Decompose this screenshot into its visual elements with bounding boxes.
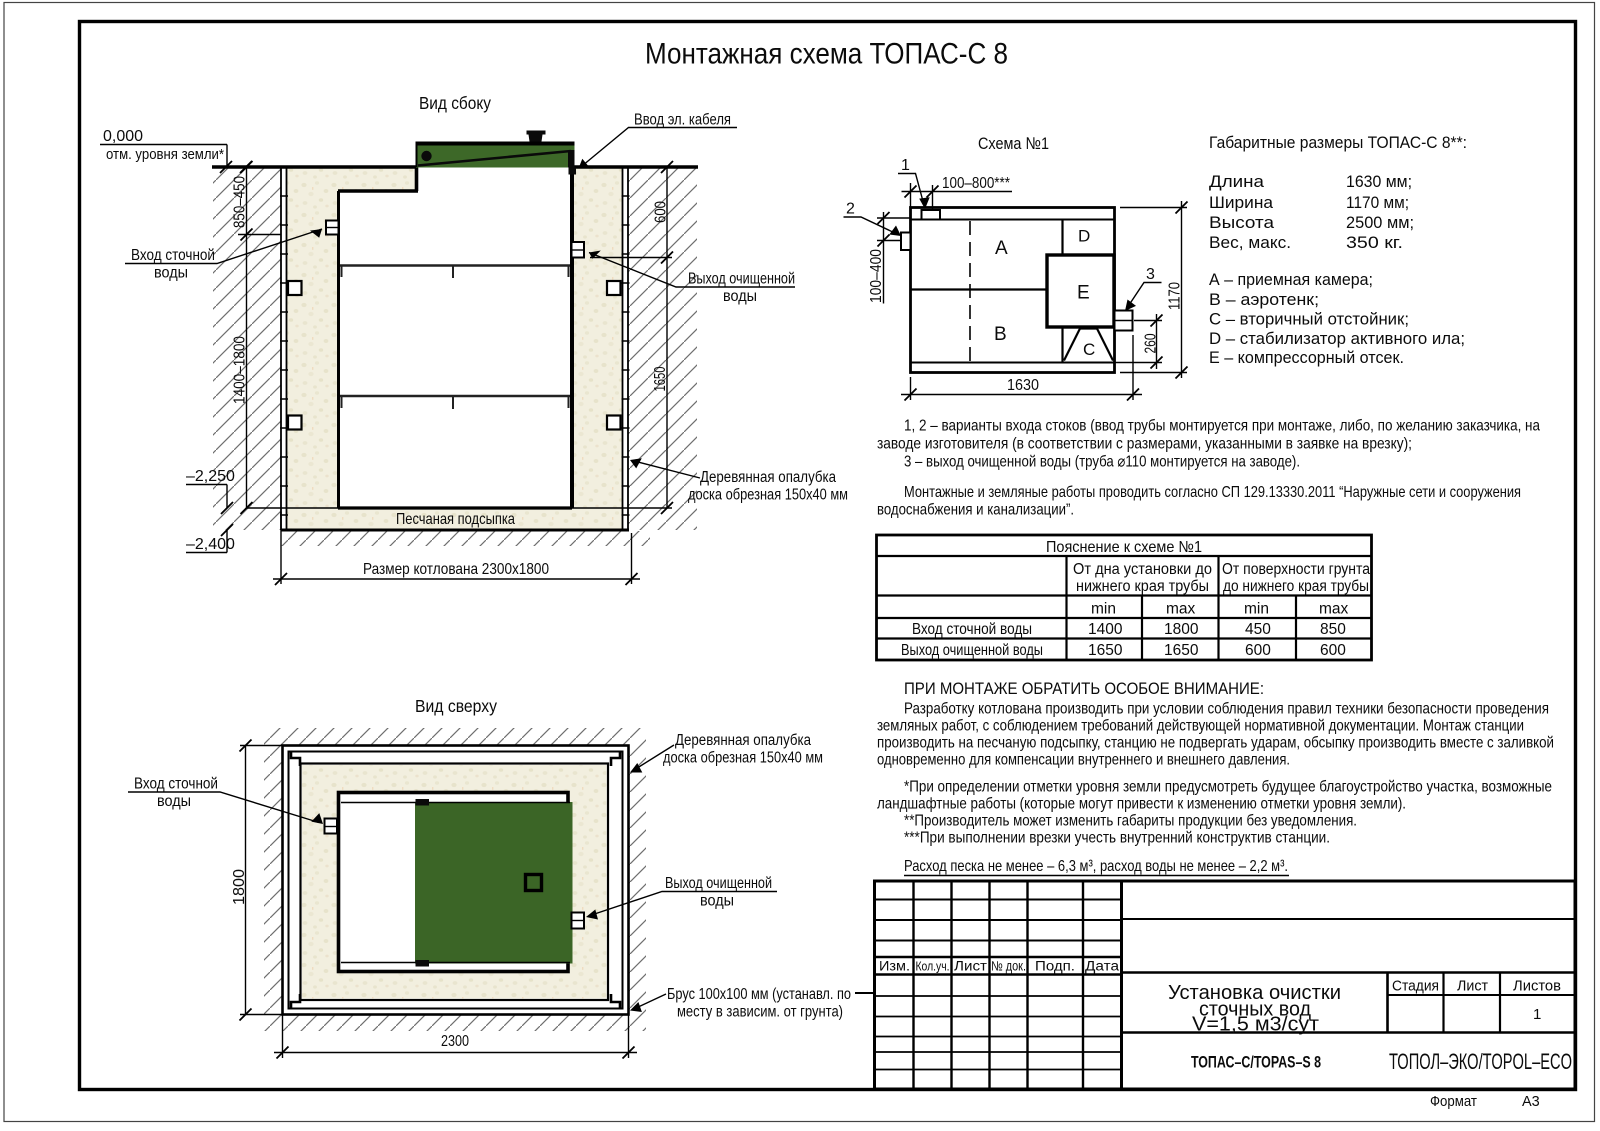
svg-text:1170: 1170 xyxy=(1167,282,1184,310)
svg-text:Лист: Лист xyxy=(1457,979,1488,995)
svg-text:Схема №1: Схема №1 xyxy=(978,134,1049,153)
svg-text:600: 600 xyxy=(653,201,670,223)
svg-text:Кол.уч.: Кол.уч. xyxy=(916,960,950,974)
svg-text:1650: 1650 xyxy=(652,366,669,391)
svg-text:**Производитель может изменить: **Производитель может изменить габариты … xyxy=(904,813,1357,830)
svg-text:260: 260 xyxy=(1143,333,1160,353)
svg-text:1650: 1650 xyxy=(1088,642,1123,659)
svg-text:Вход сточной воды: Вход сточной воды xyxy=(912,621,1032,638)
svg-text:Монтажная схема ТОПАС-С 8: Монтажная схема ТОПАС-С 8 xyxy=(645,38,1008,71)
svg-text:Монтажные и земляные работы пр: Монтажные и земляные работы проводить со… xyxy=(904,484,1521,501)
svg-text:850: 850 xyxy=(1320,621,1346,638)
svg-text:А – приемная камера;: А – приемная камера; xyxy=(1209,270,1373,289)
svg-text:600: 600 xyxy=(1245,642,1271,659)
svg-text:1630: 1630 xyxy=(1007,377,1039,394)
svg-text:С – вторичный отстойник;: С – вторичный отстойник; xyxy=(1209,310,1409,329)
svg-text:2: 2 xyxy=(846,201,855,218)
svg-text:A: A xyxy=(995,238,1008,259)
svg-text:Стадия: Стадия xyxy=(1392,979,1439,995)
svg-text:до нижнего края трубы: до нижнего края трубы xyxy=(1223,578,1369,595)
svg-text:max: max xyxy=(1319,601,1349,618)
svg-text:нижнего края трубы: нижнего края трубы xyxy=(1076,578,1209,595)
svg-text:воды: воды xyxy=(700,893,734,910)
svg-text:1400: 1400 xyxy=(1088,621,1123,638)
svg-text:земляных работ, с соблюдением: земляных работ, с соблюдением требований… xyxy=(877,718,1524,735)
svg-text:доска обрезная 150х40 мм: доска обрезная 150х40 мм xyxy=(663,750,823,767)
svg-text:Формат: Формат xyxy=(1430,1094,1477,1110)
svg-text:Размер котлована 2300х1800: Размер котлована 2300х1800 xyxy=(363,561,549,578)
svg-text:Вход сточной: Вход сточной xyxy=(134,776,218,793)
svg-text:Изм.: Изм. xyxy=(879,959,910,974)
svg-text:1400–1800: 1400–1800 xyxy=(232,336,249,404)
svg-text:1630 мм;: 1630 мм; xyxy=(1346,172,1412,191)
svg-text:От поверхности грунта: От поверхности грунта xyxy=(1222,561,1370,578)
svg-text:ландшафтные работы (которые мо: ландшафтные работы (которые могут привес… xyxy=(877,796,1406,813)
svg-text:Е – компрессорный отсек.: Е – компрессорный отсек. xyxy=(1209,348,1404,367)
svg-text:1800: 1800 xyxy=(231,869,248,905)
svg-text:0,000: 0,000 xyxy=(103,128,143,145)
svg-text:воды: воды xyxy=(723,288,757,305)
svg-text:Пояснение к схеме №1: Пояснение к схеме №1 xyxy=(1046,539,1202,556)
svg-text:доска обрезная 150х40 мм: доска обрезная 150х40 мм xyxy=(688,487,848,504)
svg-text:Выход очищенной: Выход очищенной xyxy=(665,875,772,892)
svg-text:Брус 100х100 мм (устанавл. по: Брус 100х100 мм (устанавл. по xyxy=(667,986,851,1003)
svg-text:100–400: 100–400 xyxy=(868,249,885,303)
svg-text:Дата: Дата xyxy=(1085,959,1120,974)
svg-text:1800: 1800 xyxy=(1164,621,1199,638)
svg-text:1: 1 xyxy=(901,157,910,174)
svg-text:min: min xyxy=(1091,601,1116,618)
svg-text:Габаритные размеры ТОПАС-С 8**: Габаритные размеры ТОПАС-С 8**: xyxy=(1209,133,1467,152)
svg-text:Разработку котлована производи: Разработку котлована производить при усл… xyxy=(904,701,1549,718)
svg-text:Расход песка не менее – 6,3 м³: Расход песка не менее – 6,3 м³, расход в… xyxy=(904,858,1288,875)
svg-text:В – аэротенк;: В – аэротенк; xyxy=(1209,290,1319,309)
svg-text:А3: А3 xyxy=(1522,1094,1540,1110)
svg-text:1: 1 xyxy=(1533,1006,1541,1023)
svg-text:***При выполнении врезки учест: ***При выполнении врезки учесть внутренн… xyxy=(904,830,1330,847)
svg-text:Вид сбоку: Вид сбоку xyxy=(419,93,491,113)
svg-text:E: E xyxy=(1077,283,1090,304)
svg-text:min: min xyxy=(1244,601,1269,618)
svg-text:Вес, макс.: Вес, макс. xyxy=(1209,233,1291,252)
svg-text:1650: 1650 xyxy=(1164,642,1199,659)
svg-text:Вход сточной: Вход сточной xyxy=(131,247,215,264)
svg-text:Вид сверху: Вид сверху xyxy=(415,696,497,716)
svg-text:V=1,5 м3/сут: V=1,5 м3/сут xyxy=(1192,1013,1320,1036)
svg-text:D – стабилизатор активного ила: D – стабилизатор активного ила; xyxy=(1209,329,1465,348)
svg-text:*При определении отметки уровн: *При определении отметки уровня земли пр… xyxy=(904,779,1552,796)
svg-text:производить на песчаную подсып: производить на песчаную подсыпку, станци… xyxy=(877,735,1554,752)
svg-text:воды: воды xyxy=(154,265,188,282)
svg-text:отм. уровня земли*: отм. уровня земли* xyxy=(106,146,224,163)
svg-text:ПРИ МОНТАЖЕ ОБРАТИТЬ ОСОБОЕ ВН: ПРИ МОНТАЖЕ ОБРАТИТЬ ОСОБОЕ ВНИМАНИЕ: xyxy=(904,680,1264,698)
svg-text:№ док.: № док. xyxy=(991,959,1026,974)
svg-text:Выход очищенной воды: Выход очищенной воды xyxy=(901,642,1043,659)
svg-text:Ширина: Ширина xyxy=(1209,193,1274,212)
svg-text:450: 450 xyxy=(1245,621,1271,638)
svg-text:водоснабжения и канализации”.: водоснабжения и канализации”. xyxy=(877,502,1074,519)
svg-text:350 кг.: 350 кг. xyxy=(1346,233,1403,252)
svg-text:воды: воды xyxy=(157,793,191,810)
svg-text:850–450: 850–450 xyxy=(232,176,249,228)
svg-text:100–800***: 100–800*** xyxy=(942,175,1010,192)
svg-text:Деревянная опалубка: Деревянная опалубка xyxy=(700,469,836,486)
svg-text:D: D xyxy=(1078,227,1090,246)
svg-text:Деревянная опалубка: Деревянная опалубка xyxy=(675,732,811,749)
svg-text:1, 2 – варианты входа стоков: 1, 2 – варианты входа стоков (ввод трубы… xyxy=(904,418,1540,435)
svg-text:2500 мм;: 2500 мм; xyxy=(1346,213,1414,232)
svg-text:2300: 2300 xyxy=(441,1033,469,1050)
svg-text:ТОПАС–С/TOPAS–S 8: ТОПАС–С/TOPAS–S 8 xyxy=(1191,1053,1321,1072)
svg-text:Высота: Высота xyxy=(1209,213,1275,232)
svg-text:одновременно для компенсации в: одновременно для компенсации внутреннего… xyxy=(877,752,1290,769)
svg-text:Длина: Длина xyxy=(1209,172,1265,191)
svg-text:C: C xyxy=(1083,340,1095,359)
svg-text:заводе изготовителя (в соответ: заводе изготовителя (в соответствии с ра… xyxy=(877,436,1412,453)
svg-text:Ввод эл. кабеля: Ввод эл. кабеля xyxy=(634,112,731,129)
svg-text:Выход очищенной: Выход очищенной xyxy=(688,271,795,288)
svg-text:От дна установки до: От дна установки до xyxy=(1073,561,1212,578)
svg-text:ТОПОЛ–ЭКО/TOPOL–ECO: ТОПОЛ–ЭКО/TOPOL–ECO xyxy=(1389,1049,1572,1074)
svg-text:Песчаная подсыпка: Песчаная подсыпка xyxy=(396,511,515,528)
svg-text:месту в зависим. от грунта): месту в зависим. от грунта) xyxy=(677,1004,843,1021)
svg-text:max: max xyxy=(1166,601,1196,618)
svg-text:Листов: Листов xyxy=(1513,979,1561,995)
svg-text:B: B xyxy=(994,324,1007,345)
svg-text:–2,250: –2,250 xyxy=(186,468,235,485)
svg-text:Подп.: Подп. xyxy=(1035,959,1075,974)
svg-text:600: 600 xyxy=(1320,642,1346,659)
svg-text:Лист: Лист xyxy=(954,959,987,974)
svg-text:3: 3 xyxy=(1146,266,1155,283)
svg-text:1170 мм;: 1170 мм; xyxy=(1346,193,1409,212)
svg-text:3 – выход очищенной воды (труб: 3 – выход очищенной воды (труба ⌀110 мон… xyxy=(904,454,1300,471)
